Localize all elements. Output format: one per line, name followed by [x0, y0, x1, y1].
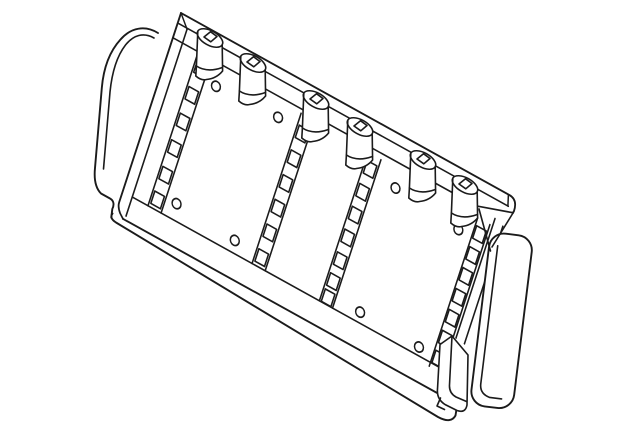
parts-diagram-page	[0, 0, 640, 429]
seat-frame-diagram	[0, 0, 640, 429]
mounting-clip	[194, 25, 225, 80]
line-art-root	[95, 13, 534, 420]
